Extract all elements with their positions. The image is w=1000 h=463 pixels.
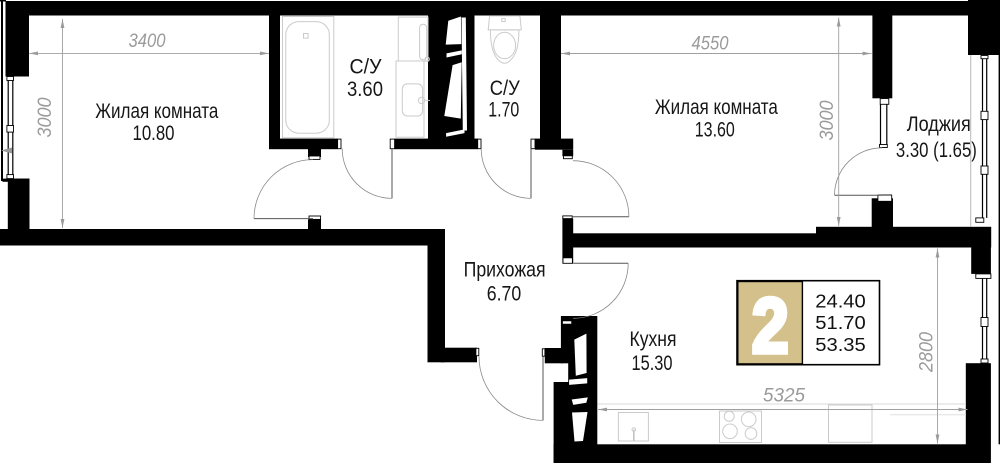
svg-text:3400: 3400: [129, 31, 166, 52]
svg-text:3.30 (1.65): 3.30 (1.65): [896, 139, 977, 162]
svg-text:Лоджия: Лоджия: [907, 113, 971, 136]
svg-text:10.80: 10.80: [133, 122, 175, 145]
svg-text:Жилая комната: Жилая комната: [95, 100, 218, 123]
svg-text:2: 2: [752, 282, 789, 370]
svg-text:Прихожая: Прихожая: [464, 259, 546, 282]
svg-text:4550: 4550: [692, 34, 729, 55]
svg-text:24.40: 24.40: [815, 290, 866, 311]
svg-text:13.60: 13.60: [695, 118, 735, 141]
svg-text:15.30: 15.30: [632, 352, 673, 375]
svg-text:51.70: 51.70: [815, 312, 866, 333]
svg-text:С/У: С/У: [490, 77, 521, 100]
svg-text:5325: 5325: [763, 386, 805, 407]
svg-text:53.35: 53.35: [815, 334, 866, 355]
svg-text:3000: 3000: [35, 97, 56, 137]
svg-text:1.70: 1.70: [488, 99, 519, 122]
svg-text:3000: 3000: [817, 100, 838, 140]
svg-text:3.60: 3.60: [347, 78, 383, 101]
svg-text:6.70: 6.70: [487, 283, 522, 306]
svg-text:С/У: С/У: [350, 56, 383, 79]
svg-text:2800: 2800: [917, 332, 938, 373]
svg-text:Кухня: Кухня: [630, 328, 677, 351]
svg-text:Жилая комната: Жилая комната: [655, 96, 778, 119]
